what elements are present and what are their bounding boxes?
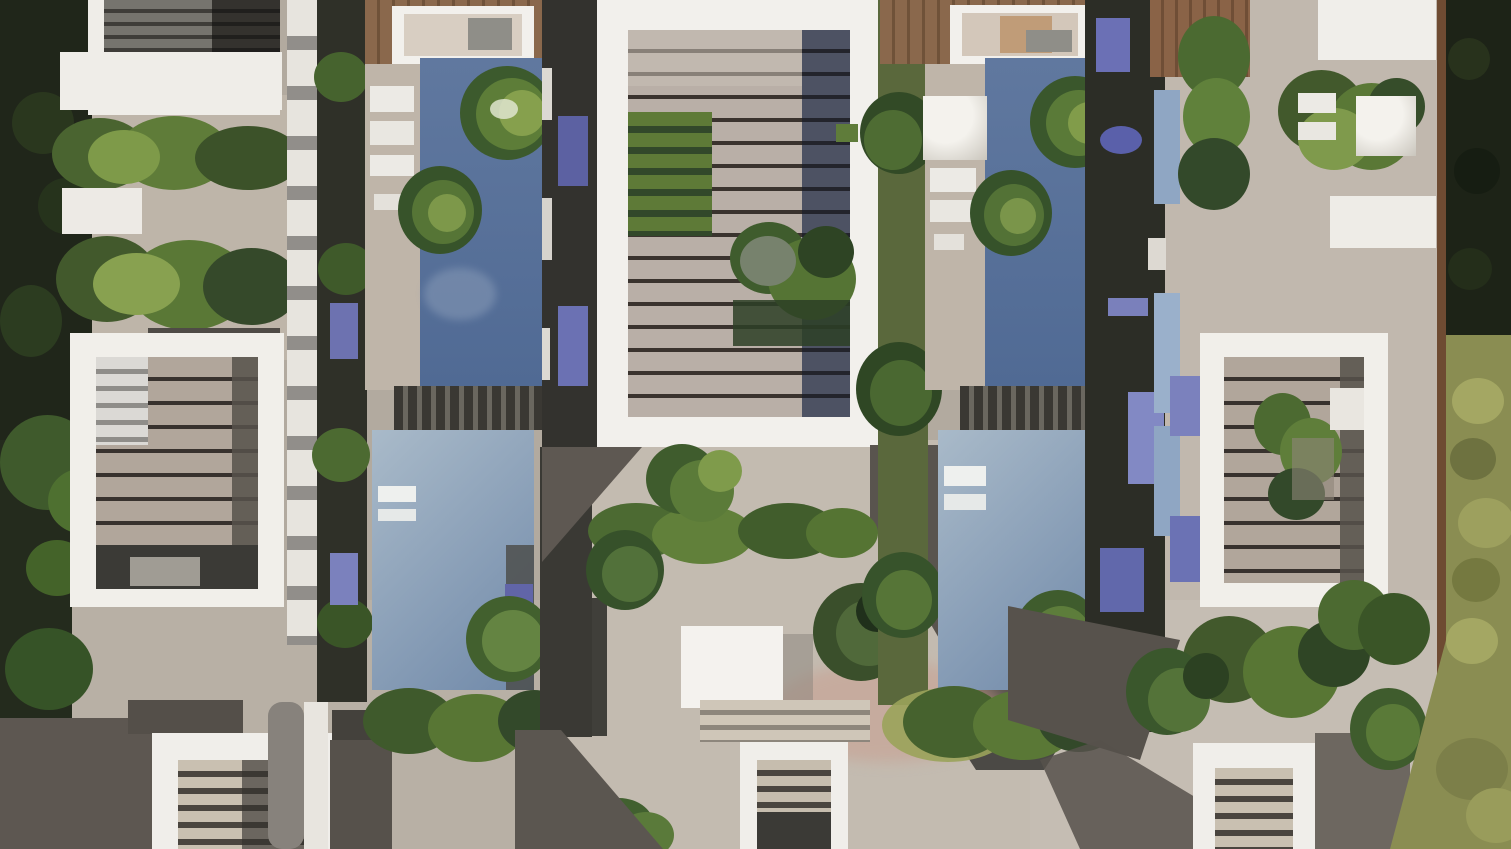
white-block — [1330, 196, 1436, 248]
tree — [482, 610, 544, 672]
terrace-underbrush — [733, 300, 850, 346]
corridor-sliver — [542, 198, 552, 260]
aerial-photo: Overhead aerial view of a modern residen… — [0, 0, 1511, 849]
roof-garden — [93, 253, 180, 315]
lawn-texture — [1446, 618, 1498, 664]
canopy-texture — [1454, 148, 1500, 194]
white-flat-roof — [681, 626, 783, 708]
sun-lounger — [944, 466, 986, 486]
canopy-texture — [1448, 248, 1492, 290]
tree — [876, 570, 932, 630]
violet-awning — [1170, 516, 1200, 582]
bush — [5, 628, 93, 710]
violet-mark — [1100, 126, 1142, 154]
building-left-roof-corner — [96, 357, 148, 445]
roof-garden — [88, 130, 160, 184]
shadow-stair-top — [128, 700, 243, 734]
slat-bridge-left — [394, 386, 544, 430]
violet-awning — [330, 303, 358, 359]
violet-awning — [1096, 18, 1130, 72]
violet-awning — [558, 116, 588, 186]
garden — [1178, 138, 1250, 210]
courtyard-steps — [1292, 438, 1334, 500]
pool-reflection — [424, 268, 496, 320]
plaza-steps — [700, 700, 870, 742]
roof-garden — [203, 248, 300, 325]
corridor-sliver — [542, 328, 550, 380]
tree — [698, 450, 742, 492]
roof-garden — [195, 126, 301, 190]
brown-boundary-wall — [1437, 0, 1446, 737]
tree — [428, 194, 466, 232]
violet-awning — [330, 553, 358, 605]
parasol — [1356, 96, 1416, 156]
pool-skimmer — [378, 509, 416, 521]
stair-steps — [178, 760, 242, 849]
white-patio — [62, 188, 142, 234]
corridor-sliver — [542, 68, 552, 120]
white-block — [1318, 0, 1436, 60]
violet-awning — [558, 306, 588, 386]
white-pillar — [304, 702, 328, 849]
lawn-texture — [1452, 558, 1500, 602]
sun-lounger — [944, 494, 986, 510]
white-bit — [1148, 238, 1166, 270]
lawn-texture — [1452, 378, 1504, 424]
violet-awning — [1108, 298, 1148, 316]
planter — [836, 124, 858, 142]
terrace-green-rows — [628, 112, 712, 236]
ribbon-bush — [312, 428, 370, 482]
ribbon-bush — [317, 598, 373, 648]
parasol — [923, 96, 987, 160]
tree — [602, 546, 658, 602]
terrace-tree — [798, 226, 854, 278]
sun-lounger — [370, 86, 414, 112]
pool-skimmer — [378, 486, 416, 502]
terrace-tree-grey — [740, 236, 796, 286]
ribbon-bush — [314, 52, 368, 102]
stair-steps — [757, 760, 831, 812]
garden — [1358, 593, 1430, 665]
sun-lounger — [370, 121, 414, 145]
lawn-texture — [1450, 438, 1496, 480]
lawn-texture — [1458, 498, 1511, 548]
hedge — [806, 508, 878, 558]
corridor-right-dark — [1085, 0, 1165, 732]
violet-awning — [1170, 376, 1200, 436]
lightblue-panel — [1154, 90, 1180, 204]
grey-pillar — [268, 702, 304, 849]
building-left-roof-notch — [130, 557, 200, 586]
white-ribbon-windows — [287, 0, 317, 645]
violet-awning — [1100, 548, 1144, 612]
tree — [1183, 653, 1229, 699]
stair-steps — [1215, 768, 1293, 849]
cabana-right-sofa — [1026, 30, 1072, 52]
bush — [0, 285, 62, 357]
cabana-left-sofa — [468, 18, 512, 50]
sun-lounger — [930, 168, 976, 192]
tree — [1000, 198, 1036, 234]
tree-highlight — [490, 99, 518, 119]
tree — [1366, 704, 1420, 761]
sun-lounger — [1298, 93, 1336, 113]
side-table — [934, 234, 964, 250]
canopy-texture — [1448, 38, 1490, 80]
sun-lounger — [1298, 122, 1336, 140]
tree — [870, 360, 932, 426]
tree — [864, 110, 922, 170]
building-center-roof-shade — [802, 30, 850, 417]
building-topleft-white-wing — [60, 52, 282, 110]
shadow-ribbon-bottom — [330, 740, 392, 849]
sun-lounger — [370, 155, 414, 176]
white-notch — [1330, 388, 1364, 430]
